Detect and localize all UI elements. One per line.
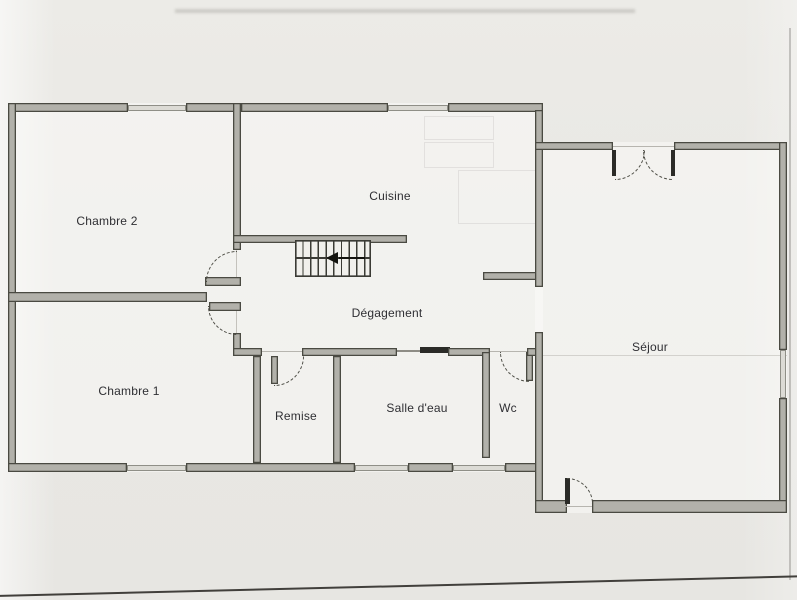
wall <box>8 463 127 472</box>
wall <box>8 103 16 472</box>
wall <box>535 332 543 513</box>
stairs-direction-icon <box>339 257 365 259</box>
wall <box>779 398 787 513</box>
room-label-remise: Remise <box>275 409 317 423</box>
room-label-degagement: Dégagement <box>352 306 423 320</box>
window <box>453 465 505 471</box>
window <box>355 465 408 471</box>
ghost-fixture <box>458 170 538 224</box>
wall <box>483 272 543 280</box>
wall <box>253 356 261 463</box>
page-edge-bottom <box>0 575 797 597</box>
wall <box>779 142 787 350</box>
wall <box>8 292 207 302</box>
door-opening <box>613 146 674 147</box>
window <box>127 465 186 471</box>
wall <box>233 348 262 356</box>
wall <box>535 500 567 513</box>
ghost-fixture <box>424 142 494 168</box>
wall <box>535 110 543 287</box>
room-label-cuisine: Cuisine <box>369 189 410 203</box>
wall <box>535 142 613 150</box>
door-leaf <box>526 352 533 381</box>
stairs-direction-icon <box>326 252 338 264</box>
scanned-floor-plan-page: Chambre 2 Chambre 1 Cuisine Dégagement R… <box>0 0 797 600</box>
staircase <box>295 240 371 277</box>
window <box>128 105 186 111</box>
page-edge-right <box>789 28 791 580</box>
wall <box>333 356 341 463</box>
scan-smudge-top <box>175 9 635 13</box>
room-label-chambre-1: Chambre 1 <box>98 384 159 398</box>
wall <box>241 103 388 112</box>
window <box>780 350 786 398</box>
wall <box>408 463 453 472</box>
room-label-salle-deau: Salle d'eau <box>386 401 447 415</box>
door-opening <box>262 351 302 352</box>
wall <box>482 352 490 458</box>
wall <box>448 103 543 112</box>
room-label-sejour: Séjour <box>632 340 668 354</box>
wall <box>186 463 355 472</box>
window <box>388 105 448 111</box>
room-label-chambre-2: Chambre 2 <box>76 214 137 228</box>
wall <box>233 103 241 250</box>
wall <box>8 103 128 112</box>
floor-area-sejour <box>535 142 787 513</box>
wall <box>674 142 787 150</box>
sliding-door-leaf <box>420 347 450 353</box>
door-opening <box>565 506 592 507</box>
wall <box>302 348 397 356</box>
room-label-wc: Wc <box>499 401 517 415</box>
ghost-fixture <box>424 116 494 140</box>
wall <box>592 500 787 513</box>
